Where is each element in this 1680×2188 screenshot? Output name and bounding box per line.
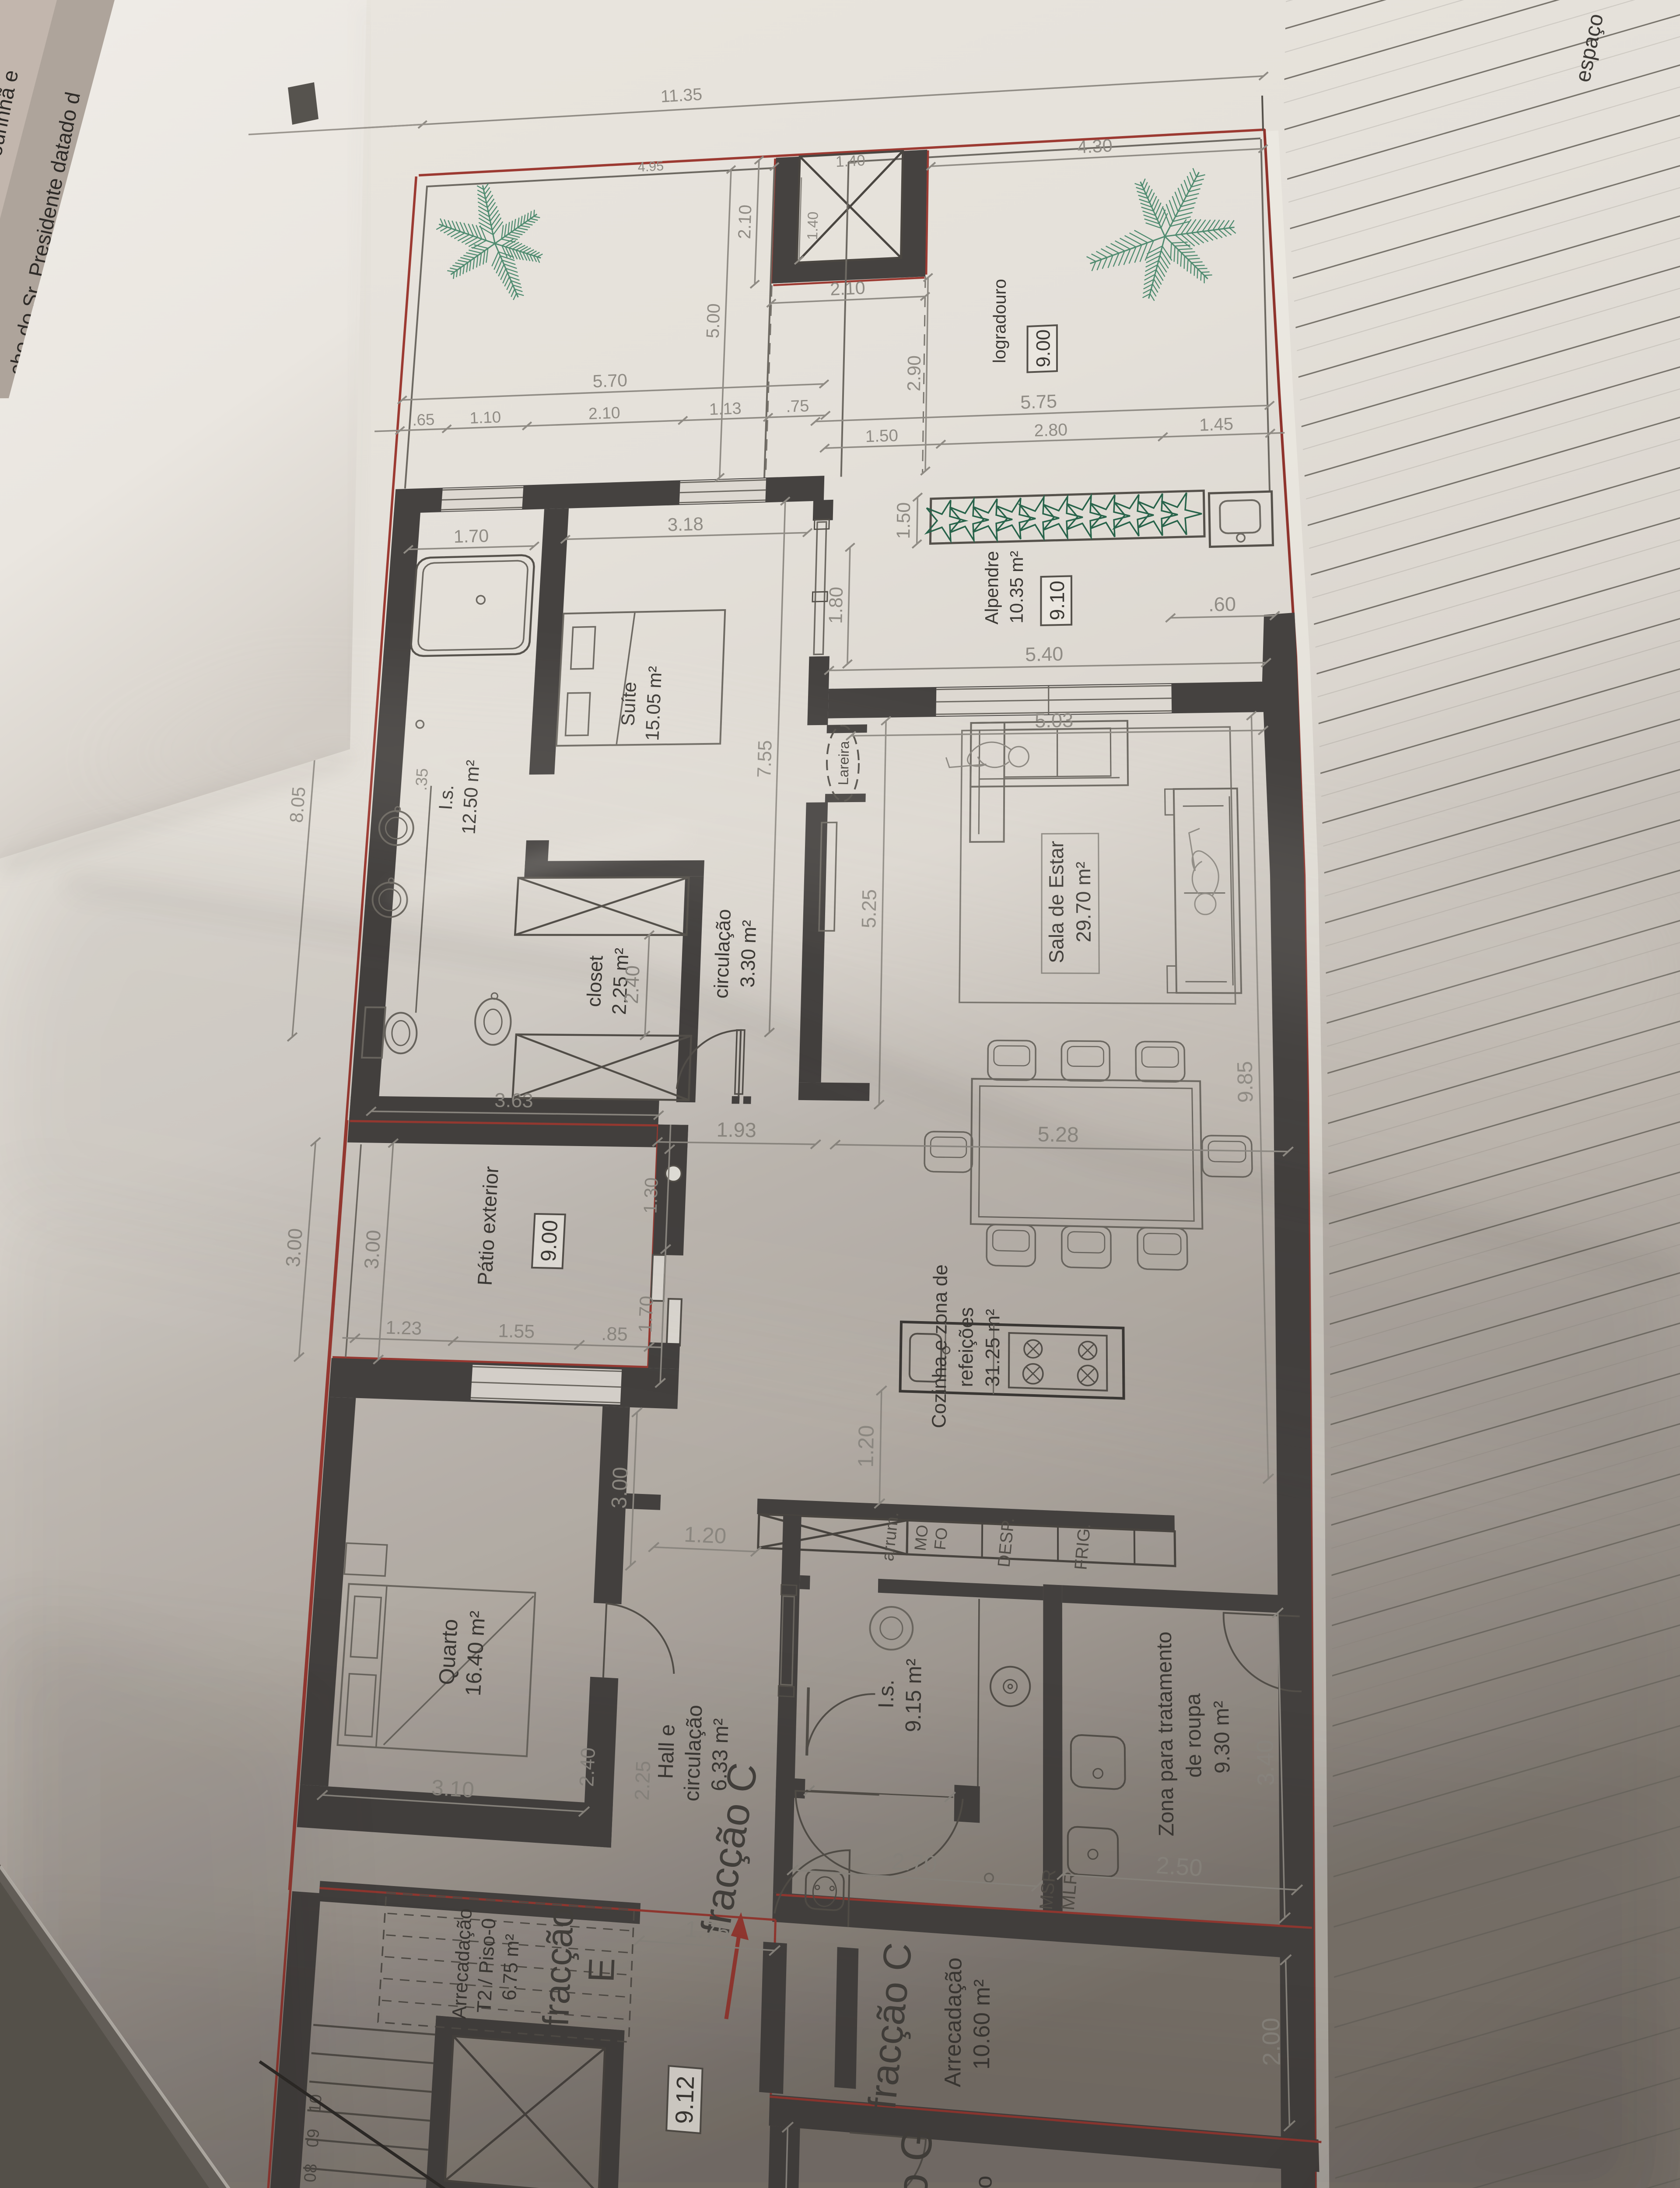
svg-text:.75: .75 <box>786 397 809 416</box>
svg-text:1.40: 1.40 <box>805 211 822 240</box>
svg-text:4.30: 4.30 <box>1077 135 1113 157</box>
svg-text:2.90: 2.90 <box>903 355 924 392</box>
svg-text:10.35 m²: 10.35 m² <box>1006 551 1027 624</box>
svg-text:1.10: 1.10 <box>469 408 501 427</box>
svg-text:2.80: 2.80 <box>1034 420 1068 441</box>
svg-text:Alpendre: Alpendre <box>981 551 1002 624</box>
svg-text:.60: .60 <box>1208 593 1236 616</box>
svg-text:5.75: 5.75 <box>1020 391 1057 413</box>
svg-text:.65: .65 <box>412 410 435 429</box>
svg-text:9.00: 9.00 <box>1033 330 1054 368</box>
svg-text:3.18: 3.18 <box>667 513 703 535</box>
svg-text:2.10: 2.10 <box>588 403 620 423</box>
svg-text:1.40: 1.40 <box>835 152 866 171</box>
svg-text:logradouro: logradouro <box>990 279 1010 363</box>
svg-text:4.95: 4.95 <box>637 158 664 175</box>
svg-text:1.50: 1.50 <box>893 502 914 539</box>
svg-text:1.50: 1.50 <box>865 426 898 446</box>
svg-text:5.40: 5.40 <box>1025 643 1064 666</box>
svg-text:9.10: 9.10 <box>1046 581 1068 621</box>
svg-text:1.70: 1.70 <box>453 526 489 547</box>
svg-text:9.85: 9.85 <box>1233 1061 1257 1103</box>
svg-text:5.03: 5.03 <box>1035 709 1074 732</box>
svg-text:1.45: 1.45 <box>1199 414 1233 435</box>
svg-text:2.10: 2.10 <box>829 277 865 299</box>
svg-text:11.35: 11.35 <box>660 85 703 106</box>
svg-text:5.70: 5.70 <box>592 370 628 391</box>
svg-text:1.80: 1.80 <box>825 586 847 624</box>
svg-text:1.13: 1.13 <box>709 399 742 419</box>
svg-text:3.30 m²: 3.30 m² <box>736 920 761 988</box>
svg-text:5.00: 5.00 <box>703 303 724 339</box>
svg-text:2.10: 2.10 <box>735 204 756 239</box>
